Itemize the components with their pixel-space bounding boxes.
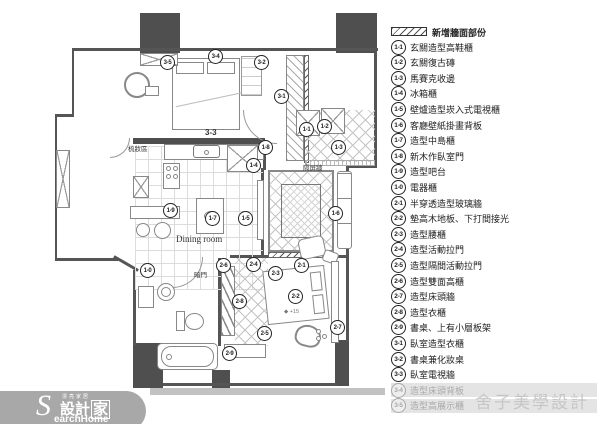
legend-item-label: 壁爐造型崁入式電視櫃: [410, 103, 500, 116]
designer-watermark: 舍子美學設計: [475, 388, 589, 413]
wall-segment: [72, 48, 378, 51]
plan-marker-2-4: 2-4: [246, 257, 261, 272]
legend-item-code: 2-3: [391, 227, 406, 242]
legend-header-label: 新增牆面部份: [432, 26, 486, 39]
legend-item-code: 1-6: [391, 118, 406, 133]
plan-marker-1-7: 1-7: [205, 211, 220, 226]
decor-dot: [316, 329, 321, 334]
legend-item-code: 1-7: [391, 133, 406, 148]
living-room-rug-inner: [281, 184, 321, 238]
new-wall-hatch-swatch: [391, 27, 427, 36]
legend-item-label: 造型床頭背板: [410, 384, 464, 397]
legend-item-label: 冰箱櫃: [410, 87, 437, 100]
legend-item-code: 1-4: [391, 86, 406, 101]
bedroom-wardrobe: [286, 55, 304, 161]
legend-item-1-5: 1-5壁爐造型崁入式電視櫃: [391, 102, 597, 116]
kitchen-sink: [193, 145, 220, 158]
burner: [166, 166, 171, 171]
plan-marker-3-2: 3-2: [254, 55, 269, 70]
vanity-table: [145, 86, 159, 96]
pillow: [207, 62, 235, 74]
plan-marker-1-4: 1-4: [246, 158, 261, 173]
legend-item-label: 臥室造型衣櫃: [410, 337, 464, 350]
screen-wall-label: 隔屏牆: [303, 162, 323, 172]
plan-marker-2-3: 2-3: [268, 266, 283, 281]
legend-item-label: 造型高展示櫃: [410, 399, 464, 412]
plan-marker-1-2: 1-2: [317, 119, 332, 134]
plan-marker-1-0: 1-0: [140, 263, 155, 278]
wall-segment: [55, 114, 74, 117]
wall-segment: [163, 383, 337, 386]
legend-item-code: 2-9: [391, 320, 406, 335]
burner: [173, 174, 178, 179]
plan-marker-1-8: 1-8: [258, 140, 273, 155]
tv-cabinet: [257, 180, 264, 240]
plan-marker-3-1: 3-1: [274, 89, 289, 104]
legend-item-2-9: 2-9書桌、上有小層板架: [391, 321, 597, 335]
legend-item-code: 1-8: [391, 149, 406, 164]
floor-height-value: +15: [290, 309, 299, 315]
pillow: [310, 271, 323, 291]
bathtub-drain: [166, 354, 172, 360]
plan-marker-2-5: 2-5: [257, 326, 272, 341]
legend-item-label: 玄關復古磚: [410, 56, 455, 69]
floor-height-label: ◆ +15: [284, 309, 299, 315]
legend-item-label: 造型雙面高櫃: [410, 275, 464, 288]
plan-marker-2-8: 2-8: [232, 294, 247, 309]
plan-marker-2-7: 2-7: [330, 320, 345, 335]
plan-marker-2-2: 2-2: [288, 289, 303, 304]
plan-marker-2-9: 2-9: [222, 346, 237, 361]
legend-item-label: 客廳壁紙掛畫背板: [410, 119, 482, 132]
legend-item-2-6: 2-6造型雙面高櫃: [391, 274, 597, 288]
plan-marker-1-1: 1-1: [299, 122, 314, 137]
legend-item-label: 造型吧台: [410, 165, 446, 178]
legend-item-code: 1-5: [391, 102, 406, 117]
legend-item-1-8: 1-8新木作臥室門: [391, 149, 597, 163]
legend-item-1-0: 1-0電器櫃: [391, 180, 597, 194]
tv-wall-label: 3-3: [205, 128, 217, 137]
legend-item-label: 造型中島櫃: [410, 134, 455, 147]
legend-item-3-3: 3-3臥室電視牆: [391, 368, 597, 382]
legend-item-2-8: 2-8造型衣櫃: [391, 305, 597, 319]
legend-item-code: 1-0: [391, 180, 406, 195]
legend-item-label: 造型床頭牆: [410, 290, 455, 303]
legend-item-1-4: 1-4冰箱櫃: [391, 87, 597, 101]
legend-item-3-1: 3-1臥室造型衣櫃: [391, 336, 597, 350]
logo-s: S: [36, 391, 51, 421]
floor-plan-page: 3-3 Dining room 梳妝區 隔屏牆 暗門 ◆ +15 3-53-43…: [0, 0, 600, 424]
legend-item-1-1: 1-1玄關造型高鞋櫃: [391, 40, 597, 54]
stove: [163, 163, 180, 189]
bath-sink-drain: [161, 287, 171, 297]
legend-item-label: 墊高木地板、下打間接光: [410, 212, 509, 225]
wall-segment: [55, 258, 119, 261]
hidden-door-label: 暗門: [194, 269, 207, 279]
legend-item-code: 1-3: [391, 71, 406, 86]
legend-item-code: 3-2: [391, 352, 406, 367]
legend-item-2-5: 2-5造型隔間活動拉門: [391, 258, 597, 272]
bar-stool: [136, 223, 150, 237]
legend-item-label: 造型活動拉門: [410, 243, 464, 256]
legend-item-code: 1-2: [391, 55, 406, 70]
legend-item-label: 玄關造型高鞋櫃: [410, 41, 473, 54]
legend-item-code: 1-9: [391, 164, 406, 179]
column: [335, 340, 349, 386]
legend-item-code: 2-7: [391, 289, 406, 304]
plan-marker-1-9: 1-9: [163, 203, 178, 218]
decor-dot: [316, 336, 321, 341]
legend-item-1-6: 1-6客廳壁紙掛畫背板: [391, 118, 597, 132]
plan-marker-2-6: 2-6: [216, 258, 231, 273]
legend-item-code: 2-6: [391, 274, 406, 289]
legend-item-1-3: 1-3馬賽克收邊: [391, 71, 597, 85]
bar-stool: [154, 222, 171, 239]
legend-item-label: 新木作臥室門: [410, 150, 464, 163]
exterior-band: [150, 388, 385, 395]
legend-item-code: 3-5: [391, 398, 406, 413]
burner: [166, 174, 171, 179]
legend-item-1-2: 1-2玄關復古磚: [391, 56, 597, 70]
legend-item-label: 造型衣櫃: [410, 306, 446, 319]
legend-item-label: 書桌兼化妝桌: [410, 353, 464, 366]
legend-item-code: 2-8: [391, 305, 406, 320]
plan-marker-2-1: 2-1: [294, 258, 309, 273]
legend-item-label: 造型隔間活動拉門: [410, 259, 482, 272]
legend-item-label: 臥室電視牆: [410, 368, 455, 381]
plan-marker-1-5: 1-5: [238, 211, 253, 226]
burner: [173, 166, 178, 171]
column: [140, 13, 180, 53]
toilet-bowl: [185, 313, 204, 330]
plan-marker-1-6: 1-6: [328, 206, 343, 221]
legend-item-2-1: 2-1半穿透造型玻璃牆: [391, 196, 597, 210]
legend-item-1-7: 1-7造型中島櫃: [391, 134, 597, 148]
legend-item-label: 書桌、上有小層板架: [410, 321, 491, 334]
legend-item-label: 馬賽克收邊: [410, 72, 455, 85]
legend-item-code: 2-1: [391, 196, 406, 211]
legend-item-label: 半穿透造型玻璃牆: [410, 197, 482, 210]
plan-marker-1-3: 1-3: [331, 140, 346, 155]
master-bed: [172, 58, 240, 130]
tall-cabinet: [56, 150, 70, 208]
legend-item-2-3: 2-3造型腰櫃: [391, 227, 597, 241]
pillow: [312, 294, 325, 314]
sink-drain: [204, 150, 209, 155]
legend-item-2-4: 2-4造型活動拉門: [391, 243, 597, 257]
appliance-cabinet: [138, 286, 154, 308]
side-closet: [133, 176, 149, 198]
dressing-area-label: 梳妝區: [128, 143, 148, 153]
legend-item-code: 3-1: [391, 336, 406, 351]
toilet-tank: [176, 311, 185, 331]
legend-item-2-7: 2-7造型床頭牆: [391, 290, 597, 304]
closet-door-arc: [110, 138, 130, 158]
legend-item-code: 2-5: [391, 258, 406, 273]
wall-segment: [72, 48, 74, 116]
decor-dot: [322, 334, 327, 339]
legend-item-code: 3-4: [391, 383, 406, 398]
dining-room-label: Dining room: [176, 234, 222, 244]
legend-item-code: 1-1: [391, 40, 406, 55]
pillow: [176, 62, 204, 74]
legend-item-3-2: 3-2書桌兼化妝桌: [391, 352, 597, 366]
searchhome-logo: 漂亮家居 S 設計家 earchHome: [0, 391, 146, 424]
logo-en: earchHome: [54, 414, 108, 424]
blanket-fold-line: [176, 92, 245, 108]
legend-item-label: 電器櫃: [410, 181, 437, 194]
bathtub: [157, 343, 218, 370]
legend-item-2-2: 2-2墊高木地板、下打間接光: [391, 212, 597, 226]
legend-item-code: 3-3: [391, 367, 406, 382]
plan-marker-3-5: 3-5: [160, 55, 175, 70]
column: [336, 13, 377, 53]
legend-item-code: 2-2: [391, 211, 406, 226]
legend-item-code: 2-4: [391, 242, 406, 257]
legend-item-label: 造型腰櫃: [410, 228, 446, 241]
plan-marker-3-4: 3-4: [208, 49, 223, 64]
diamond-icon: ◆: [284, 309, 288, 315]
legend-item-1-9: 1-9造型吧台: [391, 165, 597, 179]
